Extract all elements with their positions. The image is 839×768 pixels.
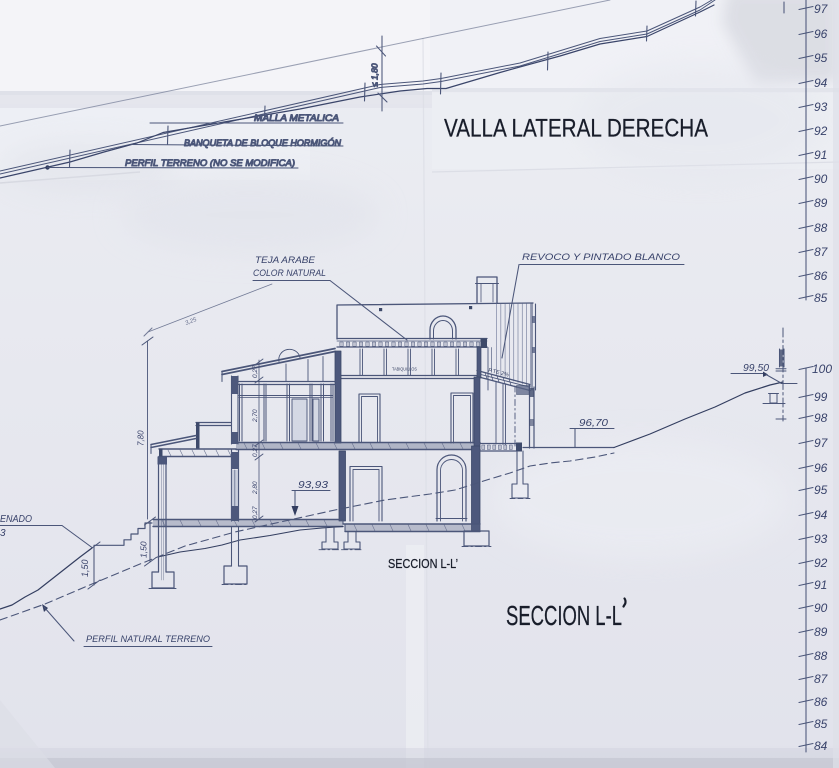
svg-text:1,50: 1,50 bbox=[80, 559, 90, 577]
svg-text:MALLA METALICA: MALLA METALICA bbox=[254, 113, 339, 124]
svg-text:PERFIL NATURAL TERRENO: PERFIL NATURAL TERRENO bbox=[86, 634, 211, 645]
svg-text:93: 93 bbox=[814, 532, 828, 546]
svg-text:TABIQUILLOS: TABIQUILLOS bbox=[392, 367, 417, 372]
svg-text:94: 94 bbox=[814, 508, 828, 522]
svg-text:96,70: 96,70 bbox=[579, 417, 608, 429]
svg-text:87: 87 bbox=[814, 245, 829, 259]
svg-text:89: 89 bbox=[814, 625, 828, 639]
svg-text:3: 3 bbox=[0, 528, 6, 539]
svg-text:99: 99 bbox=[814, 390, 828, 404]
svg-text:1,50: 1,50 bbox=[139, 541, 149, 558]
svg-text:7,80: 7,80 bbox=[137, 430, 146, 446]
svg-text:95: 95 bbox=[814, 51, 828, 65]
svg-text:98: 98 bbox=[814, 411, 828, 425]
svg-text:96: 96 bbox=[814, 461, 828, 475]
svg-text:2,70: 2,70 bbox=[252, 409, 259, 423]
svg-text:SECCION L-L: SECCION L-L bbox=[506, 600, 622, 631]
svg-text:REVOCO Y PINTADO BLANCO: REVOCO Y PINTADO BLANCO bbox=[522, 252, 681, 263]
svg-text:95: 95 bbox=[814, 483, 828, 497]
svg-text:94: 94 bbox=[814, 76, 828, 90]
svg-text:86: 86 bbox=[814, 695, 828, 709]
svg-text:BANQUETA DE BLOQUE HORMIGÓN: BANQUETA DE BLOQUE HORMIGÓN bbox=[184, 138, 341, 149]
svg-text:SECCION L-L’: SECCION L-L’ bbox=[388, 556, 458, 571]
svg-text:92: 92 bbox=[814, 556, 828, 570]
svg-text:85: 85 bbox=[814, 717, 828, 731]
svg-text:97: 97 bbox=[814, 2, 829, 16]
svg-text:86: 86 bbox=[814, 269, 828, 283]
svg-text:87: 87 bbox=[814, 672, 829, 686]
svg-text:2,80: 2,80 bbox=[252, 481, 259, 495]
svg-text:92: 92 bbox=[814, 124, 828, 138]
svg-text:93,93: 93,93 bbox=[298, 479, 328, 491]
svg-text:≤ 1,80: ≤ 1,80 bbox=[370, 63, 380, 87]
svg-text:91: 91 bbox=[814, 148, 827, 162]
svg-text:0,27: 0,27 bbox=[252, 365, 259, 378]
svg-text:97: 97 bbox=[814, 436, 829, 450]
svg-text:ENADO: ENADO bbox=[0, 514, 32, 525]
svg-text:TEJA ARABE: TEJA ARABE bbox=[255, 255, 316, 266]
svg-text:99,50: 99,50 bbox=[743, 362, 769, 374]
svg-text:91: 91 bbox=[814, 578, 827, 592]
svg-text:96: 96 bbox=[814, 27, 828, 41]
svg-text:89: 89 bbox=[814, 196, 828, 210]
svg-text:88: 88 bbox=[814, 649, 828, 663]
svg-text:84: 84 bbox=[814, 739, 828, 753]
svg-text:85: 85 bbox=[814, 291, 828, 305]
svg-text:0,27: 0,27 bbox=[252, 506, 259, 519]
svg-text:90: 90 bbox=[814, 601, 828, 615]
svg-text:100: 100 bbox=[812, 362, 832, 376]
svg-text:90: 90 bbox=[814, 172, 828, 186]
svg-text:0,27: 0,27 bbox=[252, 444, 259, 457]
svg-text:93: 93 bbox=[814, 100, 828, 114]
svg-text:88: 88 bbox=[814, 221, 828, 235]
svg-text:VALLA LATERAL DERECHA: VALLA LATERAL DERECHA bbox=[444, 115, 708, 143]
svg-text:COLOR NATURAL: COLOR NATURAL bbox=[253, 268, 326, 279]
